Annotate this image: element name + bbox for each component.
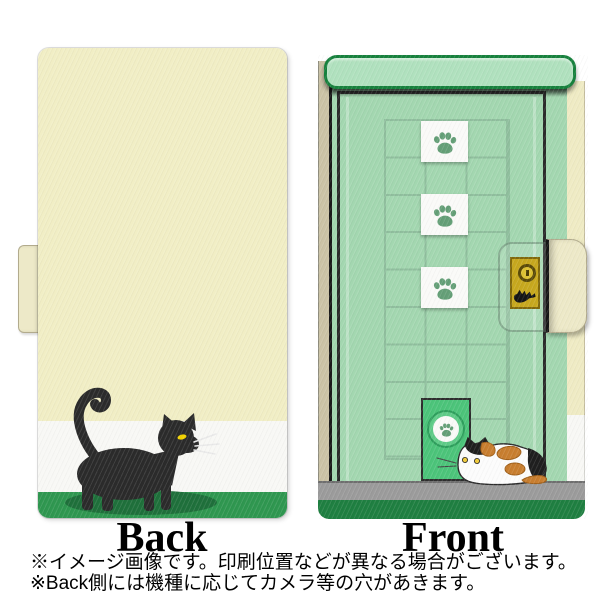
cat-eye <box>462 457 467 462</box>
cat-side-patch <box>505 463 525 475</box>
cream-band <box>38 48 287 421</box>
door-header-bar <box>324 55 576 89</box>
spine-strip-white <box>567 415 585 481</box>
paw-print-icon <box>431 201 459 229</box>
black-cat-illustration <box>60 382 222 516</box>
paw-print-icon <box>438 421 455 438</box>
strap-anchor-tab <box>18 245 40 333</box>
door-highlight <box>346 97 349 481</box>
disclaimer-line-1: ※イメージ画像です。印刷位置などが異なる場合がございます。 <box>30 552 590 573</box>
cat-whiskers <box>437 458 456 467</box>
magnetic-strap <box>546 239 587 333</box>
paw-tile <box>421 267 468 308</box>
cat-eye <box>474 458 479 463</box>
front-cover <box>318 55 588 519</box>
keyhole-icon <box>518 264 536 282</box>
product-image-canvas: Back Front ※イメージ画像です。印刷位置などが異なる場合がございます。… <box>0 0 600 600</box>
paw-tile <box>421 194 468 235</box>
paw-print-icon <box>431 274 459 302</box>
door-lock-plate <box>510 257 540 309</box>
case-side-edge <box>318 61 332 481</box>
paw-tile <box>421 121 468 162</box>
disclaimer-line-2: ※Back側には機種に応じてカメラ等の穴があきます。 <box>30 573 590 594</box>
scratch-marks-icon <box>512 287 539 308</box>
back-cover <box>38 48 287 518</box>
calico-cat-illustration <box>436 436 552 488</box>
paw-print-icon <box>431 128 459 156</box>
